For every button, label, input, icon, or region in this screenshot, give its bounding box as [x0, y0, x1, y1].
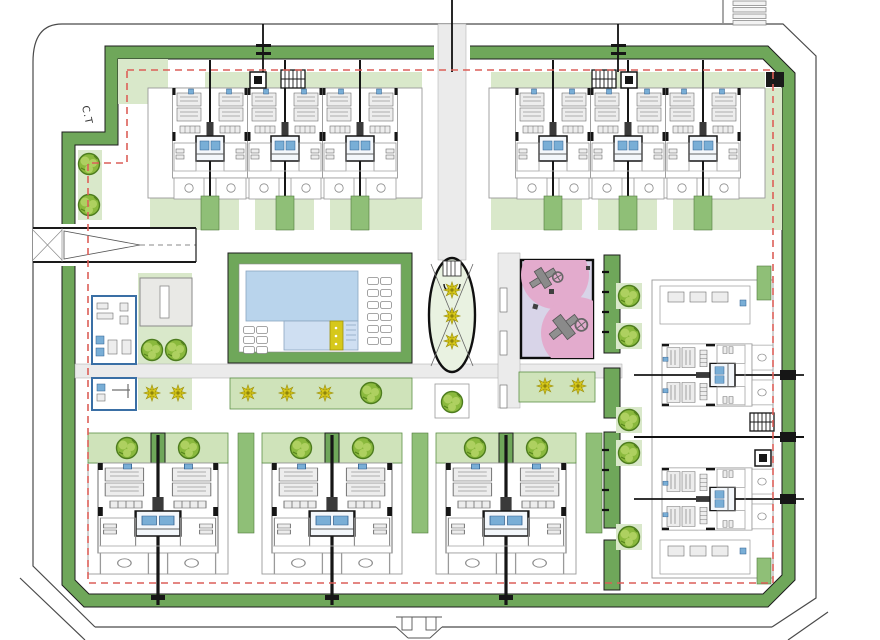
tree-icon — [166, 340, 187, 361]
tree-icon — [465, 438, 486, 459]
sun-lounger-icon — [368, 338, 379, 345]
sun-lounger-icon — [368, 326, 379, 333]
lift-icon — [250, 72, 266, 88]
garden-hedge-path — [201, 196, 219, 230]
site-plan-canvas: C.T — [0, 0, 880, 640]
tree-icon — [79, 195, 100, 216]
tree-icon — [353, 438, 374, 459]
garden-hedge-path — [276, 196, 294, 230]
main-entrance-gate — [33, 227, 196, 263]
sun-lounger-icon — [257, 337, 268, 344]
sun-lounger-icon — [368, 278, 379, 285]
tree-icon — [361, 383, 382, 404]
lift-icon — [755, 450, 771, 466]
garden-hedge-path — [694, 196, 712, 230]
pool-water — [246, 271, 358, 321]
sun-lounger-icon — [257, 347, 268, 354]
sun-lounger-icon — [368, 314, 379, 321]
sun-lounger-icon — [368, 302, 379, 309]
tree-icon — [527, 438, 548, 459]
garden-hedge-path — [544, 196, 562, 230]
tree-icon — [179, 438, 200, 459]
sun-lounger-icon — [381, 302, 392, 309]
tree-icon — [142, 340, 163, 361]
stairs-icon — [766, 72, 784, 87]
sun-lounger-icon — [381, 314, 392, 321]
site-plan-drawing: C.T — [0, 0, 880, 640]
inter-cluster-hedge — [238, 433, 254, 533]
sun-lounger-icon — [381, 338, 392, 345]
stairs-icon — [592, 70, 616, 88]
tree-icon — [619, 286, 640, 307]
lift-icon — [621, 72, 637, 88]
tree-icon — [79, 154, 100, 175]
tree-icon — [117, 438, 138, 459]
tree-icon — [619, 326, 640, 347]
sun-lounger-icon — [368, 290, 379, 297]
pool-area — [228, 253, 412, 409]
inter-cluster-hedge — [412, 433, 428, 533]
tree-icon — [619, 527, 640, 548]
sun-lounger-icon — [257, 327, 268, 334]
sun-lounger-icon — [381, 278, 392, 285]
tree-icon — [619, 410, 640, 431]
tree-icon — [619, 443, 640, 464]
sun-lounger-icon — [244, 337, 255, 344]
stairs-icon — [750, 413, 774, 431]
bottom-entrance — [95, 617, 772, 638]
tree-icon — [291, 438, 312, 459]
tree-icon — [442, 392, 463, 413]
garden-hedge-path — [351, 196, 369, 230]
garden-hedge-path — [619, 196, 637, 230]
stairs-icon — [281, 70, 305, 88]
sun-lounger-icon — [244, 347, 255, 354]
sun-lounger-icon — [244, 327, 255, 334]
inter-cluster-hedge — [586, 433, 602, 533]
ct-label: C.T — [79, 105, 94, 126]
sun-lounger-icon — [381, 326, 392, 333]
crosswalk-icon — [723, 0, 766, 25]
sun-lounger-icon — [381, 290, 392, 297]
